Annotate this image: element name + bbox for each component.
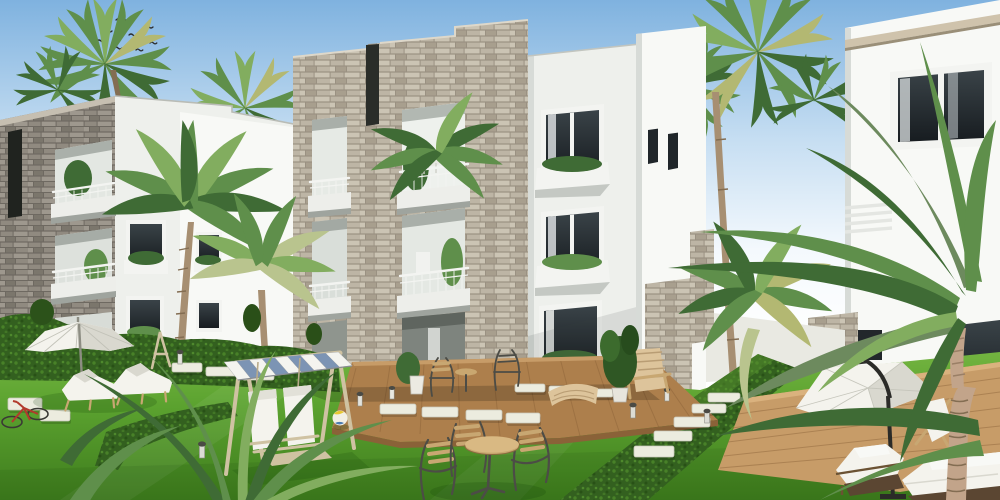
wing-window-2 (535, 206, 610, 296)
wing-window-1 (535, 104, 610, 198)
rendered-scene (0, 0, 1000, 500)
garden-compound-illustration (0, 0, 1000, 500)
central-tower-parapet-notch (366, 44, 379, 126)
rear-block-window-1 (124, 220, 168, 274)
left-tower-balcony-1 (51, 140, 116, 224)
central-balcony-top-left (308, 116, 351, 218)
left-tower-slot-window (8, 129, 22, 218)
left-tower-balcony-2 (51, 228, 116, 305)
central-balcony-mid-right (397, 208, 470, 319)
plant-pot (410, 376, 424, 394)
rear-block-window-4 (196, 300, 222, 332)
left-stone-tower-building (0, 96, 116, 352)
garden-stone-pier-2 (690, 229, 714, 344)
